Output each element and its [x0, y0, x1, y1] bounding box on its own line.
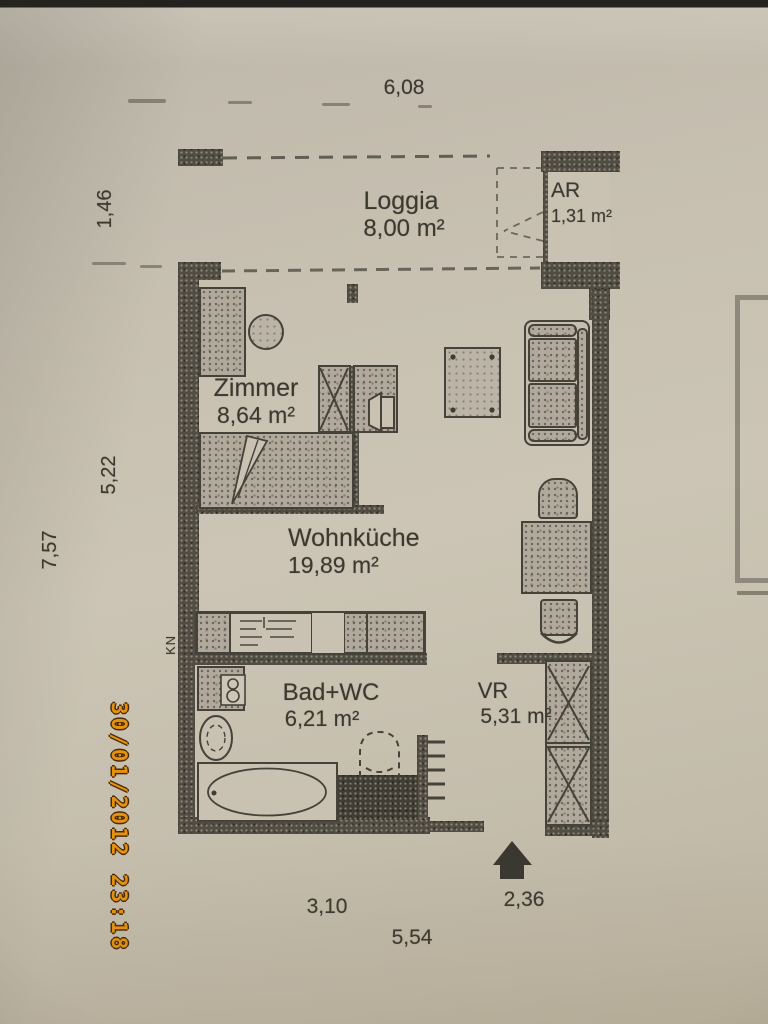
room-area-ar: 1,31 m² [551, 207, 612, 226]
kitchen-sink-detail [240, 617, 296, 645]
dim-loggia-depth: 1,46 [95, 174, 116, 244]
room-label-vr: VR [463, 679, 523, 702]
tv-symbol [369, 393, 394, 431]
room-area-wohnkueche: 19,89 m² [288, 553, 379, 577]
ar-door-swing [497, 168, 543, 257]
loggia-railing-line [223, 156, 490, 158]
loggia-window-line [222, 268, 540, 271]
entrance-arrow-icon [493, 841, 532, 879]
coffee-table-dots [450, 354, 494, 412]
dim-main-depth: 5,22 [99, 440, 120, 510]
dim-bottom-total: 5,54 [372, 927, 452, 949]
room-area-loggia: 8,00 m² [336, 216, 472, 241]
floorplan-photo: 6,08 1,46 5,22 7,57 3,10 2,36 5,54 Loggi… [0, 0, 768, 1024]
bathtub-basin [208, 769, 326, 816]
dim-bottom-left: 3,10 [287, 896, 367, 918]
room-label-ar: AR [551, 180, 580, 202]
wardrobe-x-mark [320, 368, 348, 430]
dim-total-depth: 7,57 [40, 515, 61, 585]
camera-timestamp: 30/01/2012 23:18 [107, 702, 131, 956]
radiator-ticks [427, 742, 445, 798]
room-area-vr: 5,31 m² [456, 706, 576, 728]
dim-bottom-entrance: 2,36 [484, 889, 564, 911]
room-label-zimmer: Zimmer [191, 375, 321, 401]
room-label-wohnkueche: Wohnküche [288, 525, 420, 551]
bed-wedge [232, 436, 267, 504]
chair-backrest-arc [541, 633, 577, 643]
room-label-loggia: Loggia [336, 188, 466, 214]
room-label-bad-wc: Bad+WC [266, 680, 396, 705]
kitchenette-label: KN [164, 623, 178, 655]
washer-door-symbol [221, 675, 245, 705]
dim-top-width: 6,08 [364, 77, 444, 99]
room-area-zimmer: 8,64 m² [191, 403, 321, 427]
toilet [360, 732, 399, 777]
washbasin [200, 716, 232, 760]
room-area-bad-wc: 6,21 m² [257, 707, 387, 730]
vr-wardrobe-x-marks [547, 666, 590, 822]
